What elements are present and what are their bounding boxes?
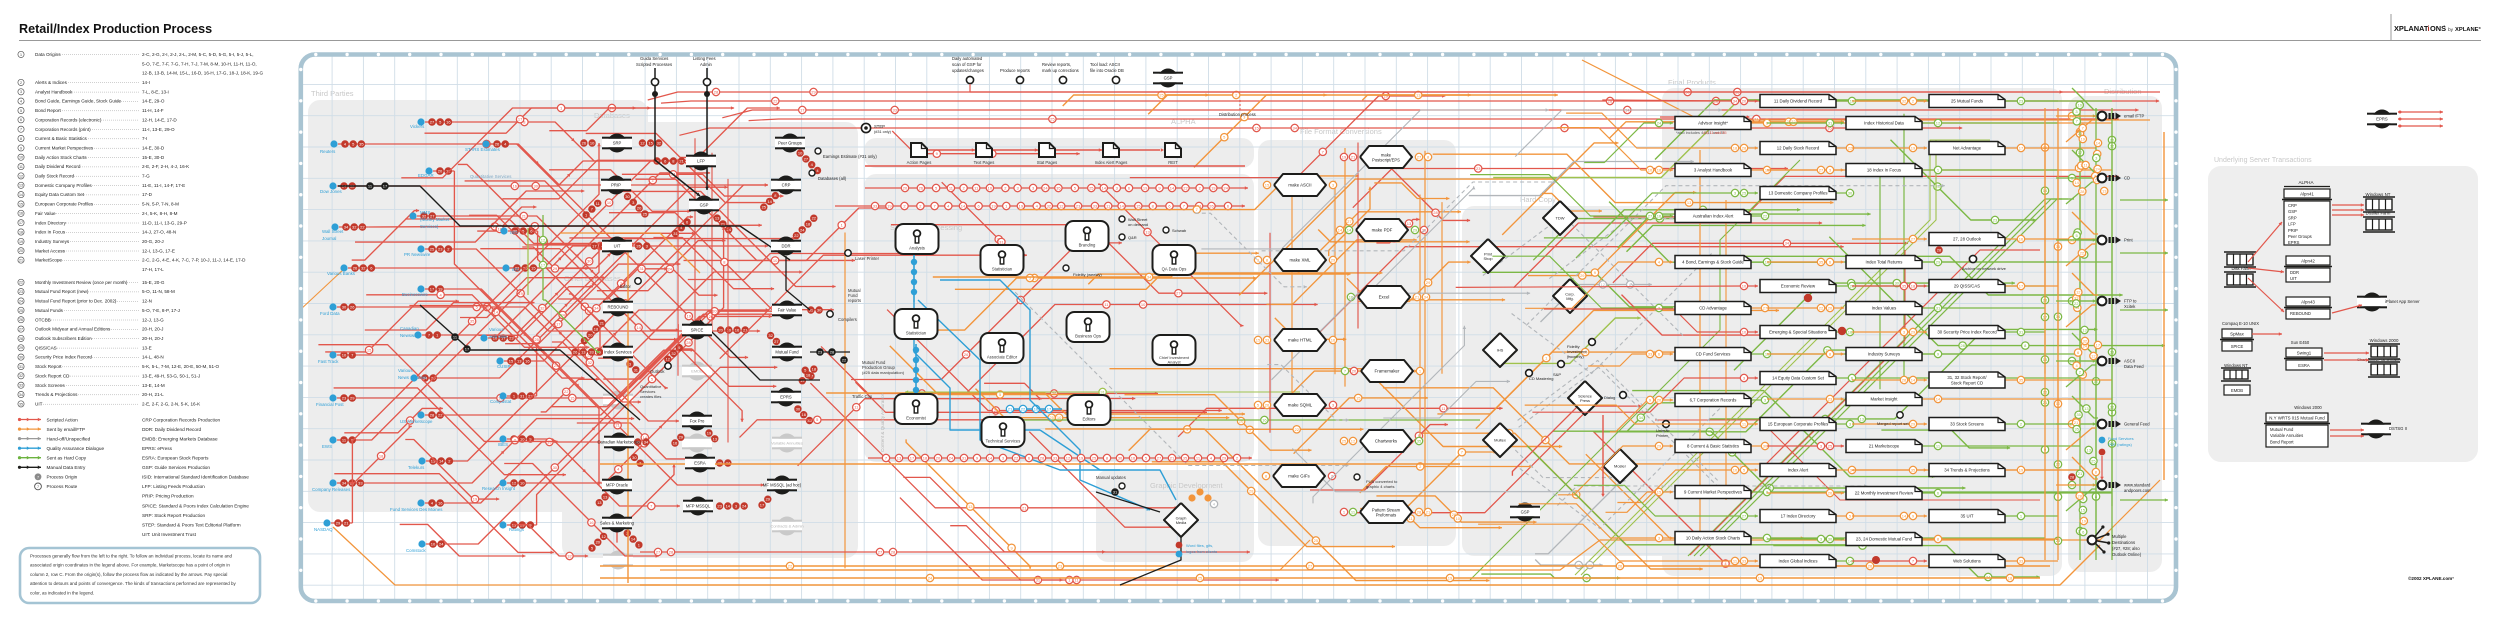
svg-text:Data Feed: Data Feed [2124,364,2144,369]
svg-text:31: 31 [634,367,639,372]
svg-text:32: 32 [657,141,662,146]
svg-text:Press: Press [1580,398,1590,403]
svg-text:14: 14 [1102,185,1107,190]
svg-text:22 Monthly Investment Review: 22 Monthly Investment Review [1855,491,1914,496]
svg-text:28: 28 [19,337,23,341]
svg-text:EPRS: EPRS [2376,117,2388,122]
svg-text:10: 10 [342,353,347,358]
svg-text:IHS: IHS [1497,347,1504,352]
svg-text:27: 27 [1308,563,1313,568]
svg-text:16: 16 [673,441,678,446]
svg-text:Editor: Editor [620,284,632,289]
svg-text:32: 32 [1902,98,1907,103]
svg-text:34: 34 [644,440,649,445]
svg-text:10: 10 [1141,302,1146,307]
svg-text:Windows NT: Windows NT [2366,192,2391,197]
svg-text:2: 2 [20,81,22,85]
svg-text:22: 22 [788,563,793,568]
svg-text:13: 13 [597,500,602,505]
svg-text:iPlanet App Server: iPlanet App Server [2385,299,2420,304]
svg-text:Compaq E-10 UNIX: Compaq E-10 UNIX [2222,321,2259,326]
svg-text:17: 17 [465,347,470,352]
svg-text:21: 21 [19,259,23,263]
svg-text:35: 35 [1911,467,1916,472]
svg-text:28: 28 [714,89,719,94]
svg-text:22: 22 [1014,455,1019,460]
svg-text:16: 16 [735,328,740,333]
svg-text:13: 13 [1407,221,1412,226]
svg-text:SRP: Stock Report Production: SRP: Stock Report Production [142,513,205,518]
svg-text:Process Route: Process Route [47,484,78,489]
svg-text:22: 22 [842,358,847,363]
svg-text:3 Analyst Handbook: 3 Analyst Handbook [1694,168,1733,173]
svg-text:30: 30 [1895,281,1900,286]
svg-text:17-H, 17-L: 17-H, 17-L [142,267,164,272]
svg-text:14: 14 [1911,377,1916,382]
svg-text:35: 35 [19,402,23,406]
svg-text:29: 29 [1911,421,1916,426]
svg-text:10: 10 [1455,516,1460,521]
svg-text:13-E: 13-E [142,345,152,350]
svg-text:25: 25 [1092,455,1097,460]
svg-text:IDC: IDC [512,267,520,272]
svg-text:27: 27 [430,120,435,125]
svg-text:27: 27 [1417,154,1422,159]
svg-text:ASCII: ASCII [2124,359,2135,364]
svg-text:25: 25 [1198,575,1203,580]
svg-text:34 Trends & Projections: 34 Trends & Projections [1944,468,1990,473]
svg-text:14: 14 [1170,185,1175,190]
svg-text:Mutual Fund: Mutual Fund [775,350,799,355]
svg-text:12: 12 [601,534,606,539]
svg-text:Web Solutions: Web Solutions [1953,559,1981,564]
svg-text:23: 23 [1058,563,1063,568]
svg-text:Emerging & Special Situations: Emerging & Special Situations [1769,330,1827,335]
svg-text:Corporation Records (print): Corporation Records (print) [35,127,91,132]
svg-text:Telekurs: Telekurs [408,465,425,470]
svg-text:13: 13 [1145,229,1150,234]
svg-text:Business Ops: Business Ops [1075,334,1101,339]
svg-text:Outlook: Outlook [650,369,665,374]
svg-text:Security Price Index Record: Security Price Index Record [35,355,92,360]
svg-text:14: 14 [19,193,23,197]
svg-text:(#27, #28; also: (#27, #28; also [2112,546,2140,551]
svg-text:CRP: CRP [782,183,791,188]
svg-text:make HTML: make HTML [1288,338,1312,343]
svg-text:Peer Groups: Peer Groups [2288,234,2312,239]
svg-text:17: 17 [2019,145,2024,150]
svg-text:7: 7 [20,128,22,132]
svg-text:21: 21 [1351,154,1356,159]
svg-text:EMDB: Emerging Markets Databas: EMDB: Emerging Markets Database [142,436,218,441]
svg-text:logos from clients: logos from clients [1186,549,1217,554]
svg-text:Manual updates: Manual updates [1096,475,1126,480]
svg-text:20: 20 [1352,368,1357,373]
svg-text:30: 30 [1848,190,1853,195]
svg-text:Index Alert: Index Alert [1788,468,1809,473]
svg-text:Bond Report: Bond Report [35,108,62,113]
svg-text:27: 27 [878,549,883,554]
svg-text:17: 17 [383,184,388,189]
svg-text:14-I: 14-I [142,80,150,85]
svg-text:DDR: DDR [781,244,790,249]
svg-text:Australian Index Alert: Australian Index Alert [1693,214,1734,219]
svg-text:28: 28 [2070,475,2075,480]
svg-text:3: 3 [20,90,22,94]
svg-text:26: 26 [495,142,500,147]
svg-text:10: 10 [1742,329,1747,334]
svg-text:5-O, 7-E, 8-P, 17-J: 5-O, 7-E, 8-P, 17-J [142,308,180,313]
svg-text:Daily Action Stock Charts: Daily Action Stock Charts [35,155,87,160]
svg-text:European Corporate Profiles: European Corporate Profiles [35,202,94,207]
svg-text:Trends & Projections: Trends & Projections [35,392,78,397]
svg-text:19: 19 [1079,455,1084,460]
svg-text:16: 16 [2019,236,2024,241]
svg-text:make GIFs: make GIFs [1288,474,1310,479]
svg-text:20-H, 21-L: 20-H, 21-L [142,392,164,397]
svg-text:NASDAQ: NASDAQ [314,527,333,532]
svg-text:34: 34 [1733,98,1738,103]
svg-text:17: 17 [518,117,523,122]
svg-text:10 Daily Action Stock Charts: 10 Daily Action Stock Charts [1686,536,1740,541]
svg-text:Stock Report: Stock Report [35,364,62,369]
svg-text:18: 18 [2008,575,2013,580]
svg-text:19: 19 [1211,185,1216,190]
svg-text:12-H, 14-E, 17-D: 12-H, 14-E, 17-D [142,117,177,122]
svg-text:30: 30 [796,406,801,411]
svg-text:33: 33 [1648,351,1653,356]
svg-text:Statistician: Statistician [992,267,1013,272]
svg-text:23: 23 [438,247,443,252]
svg-text:35: 35 [470,319,475,324]
svg-text:Data Origins: Data Origins [35,52,61,57]
svg-text:Monthly Investment Review (onc: Monthly Investment Review (once per mont… [35,280,128,285]
svg-text:Stat Pages: Stat Pages [1037,160,1058,165]
svg-text:Sun E450: Sun E450 [2291,340,2310,345]
svg-text:14: 14 [767,199,772,204]
svg-text:24: 24 [726,227,731,232]
svg-text:17-D: 17-D [142,192,153,197]
svg-text:DDR: Daily Dividend Record: DDR: Daily Dividend Record [142,427,202,432]
svg-text:Hand-off/Unspecified: Hand-off/Unspecified [47,436,91,441]
svg-text:27: 27 [1157,455,1162,460]
svg-text:16: 16 [438,501,443,506]
svg-text:13: 13 [603,494,608,499]
svg-text:7: 7 [37,485,39,489]
svg-text:Index Global Indices: Index Global Indices [1779,559,1818,564]
svg-text:15: 15 [1356,395,1361,400]
svg-text:33: 33 [19,384,23,388]
svg-text:Contracts & Admin: Contracts & Admin [770,524,803,529]
svg-text:22: 22 [564,389,569,394]
svg-text:Alpn43: Alpn43 [2301,300,2315,305]
svg-text:24: 24 [726,461,731,466]
svg-text:by: by [2448,27,2454,33]
svg-text:Earnings Estimate (#31 only): Earnings Estimate (#31 only) [823,154,877,159]
svg-text:S&P: S&P [1553,372,1561,377]
svg-text:28: 28 [2077,493,2082,498]
svg-text:27: 27 [1347,219,1352,224]
svg-text:21: 21 [2078,471,2083,476]
svg-text:11: 11 [19,165,23,169]
svg-text:14: 14 [2074,180,2079,185]
svg-text:16: 16 [19,212,23,216]
svg-text:32: 32 [352,225,357,230]
svg-text:20-G, 20-J: 20-G, 20-J [142,239,164,244]
svg-text:Index Services: Index Services [604,350,631,355]
svg-text:8 Current & Basic Statistics: 8 Current & Basic Statistics [1687,444,1739,449]
svg-text:Q&R: Q&R [1128,235,1137,240]
svg-text:30: 30 [1828,536,1833,541]
svg-text:EPRS: EPRS [780,395,792,400]
svg-text:17: 17 [1047,406,1052,411]
svg-text:22: 22 [1021,406,1026,411]
svg-text:16: 16 [801,412,806,417]
svg-text:make XML: make XML [1290,258,1312,263]
svg-text:30: 30 [587,259,592,264]
svg-text:27: 27 [1648,213,1653,218]
svg-text:18 Index In Focus: 18 Index In Focus [1867,168,1901,173]
svg-text:21: 21 [344,521,349,526]
svg-text:33: 33 [873,203,878,208]
svg-text:35: 35 [1902,283,1907,288]
svg-text:10: 10 [1733,467,1738,472]
svg-text:Stock Report CD: Stock Report CD [35,373,70,378]
svg-text:35: 35 [1417,438,1422,443]
svg-text:26: 26 [919,185,924,190]
svg-text:22: 22 [1183,185,1188,190]
svg-text:18: 18 [379,453,384,458]
svg-text:Tool load: ASCII: Tool load: ASCII [1090,62,1120,67]
svg-text:23: 23 [342,396,347,401]
svg-text:Market Insight: Market Insight [1871,397,1899,402]
svg-text:26: 26 [1265,402,1270,407]
svg-text:REBOUND: REBOUND [608,305,629,310]
svg-text:20: 20 [936,455,941,460]
svg-text:27: 27 [804,156,809,161]
svg-text:General Feed: General Feed [2124,422,2150,427]
svg-text:14: 14 [1936,396,1941,401]
svg-text:REBOUND: REBOUND [2290,311,2311,316]
svg-text:EPRS: ePress: EPRS: ePress [142,446,173,451]
svg-text:STARS Estimates: STARS Estimates [465,147,501,152]
svg-text:10: 10 [431,542,436,547]
svg-text:17: 17 [2096,342,2101,347]
svg-text:Ratings: Ratings [509,527,525,532]
svg-text:Market Access: Market Access [35,248,66,253]
svg-text:24: 24 [19,299,23,303]
svg-text:10: 10 [19,156,23,160]
svg-text:15-E, 30-D: 15-E, 30-D [142,155,165,160]
svg-text:27: 27 [1176,291,1181,296]
svg-text:30: 30 [632,455,637,460]
svg-text:19: 19 [1758,575,1763,580]
svg-text:Analyst: Analyst [1167,360,1181,365]
svg-text:33: 33 [1742,558,1747,563]
svg-text:Swing1: Swing1 [2297,351,2312,356]
svg-text:EDGAR: EDGAR [418,173,434,178]
svg-text:13: 13 [897,455,902,460]
svg-text:29: 29 [1384,93,1389,98]
svg-text:make PDF: make PDF [1372,228,1393,233]
svg-text:28: 28 [1433,210,1438,215]
svg-text:13: 13 [713,436,718,441]
svg-text:29: 29 [350,396,355,401]
svg-text:Quality Assurance Dialogue: Quality Assurance Dialogue [47,446,105,451]
svg-text:Postscript/EPS: Postscript/EPS [1372,158,1400,163]
svg-text:14: 14 [1338,227,1343,232]
svg-text:19: 19 [1911,145,1916,150]
svg-text:7-G: 7-G [142,174,150,179]
svg-text:Databases (all): Databases (all) [818,176,847,181]
svg-text:7: 7 [37,475,39,479]
svg-text:35: 35 [2076,412,2081,417]
svg-text:Vickers: Vickers [410,124,425,129]
svg-text:Economist: Economist [906,416,926,421]
svg-text:25: 25 [534,337,539,342]
svg-text:associated origin coordinates: associated origin coordinates in the leg… [30,563,230,568]
svg-text:7-L, 8-E, 13-I: 7-L, 8-E, 13-I [142,89,169,94]
svg-text:18: 18 [806,372,811,377]
svg-text:20: 20 [19,249,23,253]
svg-text:21: 21 [522,213,527,218]
svg-text:Distribution process: Distribution process [1219,112,1256,117]
svg-text:4: 4 [20,100,22,104]
svg-text:Associate Editor: Associate Editor [987,355,1018,360]
svg-text:Fund Services: Fund Services [2108,436,2134,441]
svg-text:1: 1 [20,53,22,57]
svg-text:15: 15 [1657,489,1662,494]
svg-text:12-J, 13-G: 12-J, 13-G [142,317,164,322]
svg-text:22: 22 [1819,305,1824,310]
svg-text:Sent by email/FTP: Sent by email/FTP [47,427,86,432]
svg-text:Ford Data: Ford Data [320,311,340,316]
svg-text:10: 10 [590,141,595,146]
svg-text:28: 28 [1902,377,1907,382]
svg-text:19: 19 [1019,203,1024,208]
svg-text:25: 25 [1828,443,1833,448]
svg-text:13: 13 [517,359,522,364]
svg-text:27, 28 Outlook: 27, 28 Outlook [1953,237,1982,242]
svg-text:28: 28 [1937,248,1942,253]
svg-text:35: 35 [1183,455,1188,460]
svg-text:33: 33 [2019,558,2024,563]
svg-text:28: 28 [686,340,691,345]
svg-text:24: 24 [2095,166,2100,171]
svg-text:34: 34 [342,481,347,486]
svg-text:15: 15 [570,395,575,400]
svg-text:Scripted Action: Scripted Action [47,417,79,422]
svg-text:27: 27 [774,339,779,344]
svg-text:19: 19 [800,378,805,383]
svg-text:28: 28 [669,549,674,554]
svg-text:12: 12 [640,141,645,146]
svg-text:25: 25 [643,211,648,216]
svg-text:23: 23 [1828,396,1833,401]
svg-text:14: 14 [1347,227,1352,232]
svg-text:13: 13 [581,350,586,355]
svg-text:20-H, 20-J: 20-H, 20-J [142,336,163,341]
svg-text:29: 29 [1426,280,1431,285]
svg-text:25: 25 [1089,185,1094,190]
svg-text:26: 26 [636,244,641,249]
svg-text:STEP: Standard & Poors Text Ed: STEP: Standard & Poors Text Editorial Pl… [142,522,241,527]
svg-text:Mutual Fund Report (prior to D: Mutual Fund Report (prior to Dec. 2002) [35,299,117,304]
svg-text:35: 35 [1056,185,1061,190]
svg-text:19: 19 [2082,518,2087,523]
svg-text:GSP: GSP [2288,209,2297,214]
svg-text:26: 26 [1618,563,1623,568]
svg-text:Excel: Excel [1379,295,1390,300]
svg-text:24: 24 [439,542,444,547]
svg-text:Net Advantage: Net Advantage [1953,146,1982,151]
svg-text:Action Pages: Action Pages [907,160,932,165]
svg-text:14: 14 [439,459,444,464]
svg-text:CRP: CRP [2288,203,2297,208]
svg-text:33: 33 [1265,337,1270,342]
svg-text:Editors: Editors [1082,417,1095,422]
svg-text:29: 29 [1911,329,1916,334]
svg-text:22: 22 [1294,427,1299,432]
svg-text:Chartworks: Chartworks [1375,439,1398,444]
svg-text:Windows 2000: Windows 2000 [2370,338,2399,343]
svg-text:35 UIT: 35 UIT [1961,514,1974,519]
svg-text:20: 20 [718,328,723,333]
svg-text:33: 33 [358,481,363,486]
svg-text:18: 18 [1733,145,1738,150]
svg-text:12-N: 12-N [142,299,152,304]
svg-text:31: 31 [962,455,967,460]
svg-text:Alerts & Indices: Alerts & Indices [35,80,68,85]
svg-text:17: 17 [19,221,23,225]
svg-text:DSTSG II: DSTSG II [2389,426,2407,431]
svg-text:20: 20 [903,185,908,190]
svg-text:TDW: TDW [1555,215,1564,220]
svg-text:Sent as Hard Copy: Sent as Hard Copy [47,456,87,461]
svg-text:23: 23 [717,504,722,509]
svg-text:13: 13 [2086,447,2091,452]
svg-text:27: 27 [1742,513,1747,518]
svg-text:Businesswire: Businesswire [402,292,428,297]
svg-text:2-C, 2-G, 2-I, 2-J, 2-L, 2-M,: 2-C, 2-G, 2-I, 2-J, 2-L, 2-M, 5-C, 5-D, … [142,52,254,57]
svg-text:14: 14 [631,537,636,542]
svg-text:reports: reports [848,298,861,303]
svg-text:16: 16 [1131,455,1136,460]
svg-text:19: 19 [19,240,23,244]
svg-text:11-E, 11-I, 14-F, 17-E: 11-E, 11-I, 14-F, 17-E [142,183,185,188]
svg-text:QA Data Ops: QA Data Ops [1162,267,1187,272]
svg-text:28: 28 [2080,189,2085,194]
svg-text:Technical Services: Technical Services [986,439,1021,444]
svg-text:14-J, 27-O, 48-N: 14-J, 27-O, 48-N [142,230,176,235]
svg-text:32: 32 [588,360,593,365]
svg-text:Bond Guide, Earnings Guide, St: Bond Guide, Earnings Guide, Stock Guide [35,99,122,104]
svg-text:12: 12 [666,357,671,362]
svg-text:Destinations: Destinations [2112,540,2135,545]
svg-text:scan of GSP for: scan of GSP for [952,62,982,67]
svg-text:GSP: GSP [700,203,709,208]
svg-text:14 Equity Data Custom Set: 14 Equity Data Custom Set [1772,376,1825,381]
svg-text:8: 8 [20,137,22,141]
svg-text:10: 10 [1742,283,1747,288]
svg-text:25: 25 [1050,116,1055,121]
svg-text:19: 19 [1448,575,1453,580]
svg-text:EWS: EWS [322,444,332,449]
svg-text:34: 34 [1785,241,1790,246]
svg-text:Text Pages: Text Pages [974,160,995,165]
svg-text:Current Market Perspectives: Current Market Perspectives [35,146,94,151]
svg-text:N.Y WRTS 015 Mutual Fund: N.Y WRTS 015 Mutual Fund [2269,416,2325,421]
